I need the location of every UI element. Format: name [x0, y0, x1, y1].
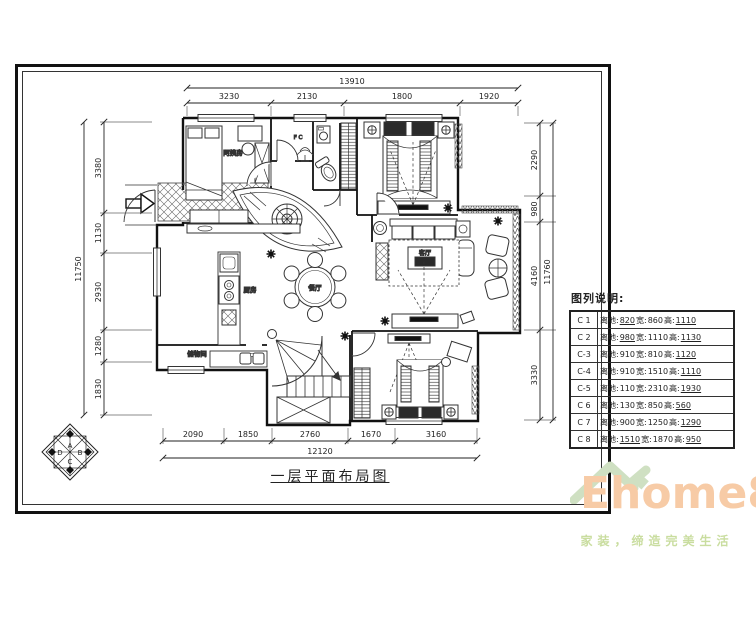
svg-text:1920: 1920 — [479, 92, 499, 101]
compass-d: D — [57, 449, 62, 457]
legend-row: C 6 离地:130宽:850高:560 — [570, 397, 734, 414]
brand-name: Ehome8 — [580, 472, 756, 516]
room-label-living: 客厅 — [419, 249, 431, 257]
kitchen: 厨房 储物间 — [187, 252, 267, 367]
svg-text:3230: 3230 — [219, 92, 239, 101]
svg-text:3160: 3160 — [426, 430, 446, 439]
balcony — [484, 217, 510, 301]
svg-text:2090: 2090 — [183, 430, 203, 439]
legend-row: C-3 离地:910宽:810高:1120 — [570, 346, 734, 363]
brand-logo: Ehome8 家装，缔造完美生活 — [558, 448, 756, 558]
hall-note: F C — [294, 135, 303, 141]
legend-table: C 1 离地:820宽:860高:1110 C 2 离地:980宽:1110高:… — [569, 310, 735, 449]
room-label-dining: 餐厅 — [309, 283, 323, 292]
svg-text:2130: 2130 — [297, 92, 317, 101]
room-label-storage: 储物间 — [187, 349, 207, 358]
floor-plan-page: 阿姨房 F C — [0, 0, 756, 630]
dining: 餐厅 — [267, 250, 346, 322]
dimensions-right: 2290 980 4160 3330 11760 — [530, 120, 556, 423]
svg-text:2760: 2760 — [300, 430, 320, 439]
svg-text:4160: 4160 — [530, 266, 539, 286]
room-label-nanny: 阿姨房 — [223, 148, 243, 157]
svg-text:2290: 2290 — [530, 150, 539, 170]
dimensions-top: 13910 3230 2130 1800 1920 — [184, 77, 521, 106]
dimensions-bottom: 2090 1850 2760 1670 3160 12120 — [160, 430, 480, 461]
svg-text:13910: 13910 — [339, 77, 364, 86]
legend-row: C-4 离地:910宽:1510高:1110 — [570, 363, 734, 380]
toilet-icon — [315, 156, 340, 184]
living-room: 客厅 — [374, 219, 475, 328]
compass: A B C D — [42, 424, 98, 480]
stairs — [268, 330, 351, 424]
legend-row: C 7 离地:900宽:1250高:1290 — [570, 414, 734, 431]
svg-text:3380: 3380 — [94, 158, 103, 178]
signal-icon — [297, 148, 313, 162]
svg-text:1850: 1850 — [238, 430, 258, 439]
legend-title: 图列说明: — [571, 290, 739, 306]
svg-text:11750: 11750 — [74, 256, 83, 281]
compass-a: A — [68, 442, 73, 450]
legend-panel: 图列说明: C 1 离地:820宽:860高:1110 C 2 离地:980宽:… — [569, 290, 739, 449]
svg-text:1670: 1670 — [361, 430, 381, 439]
bedroom-kids — [341, 332, 472, 420]
compass-c: C — [68, 458, 73, 466]
legend-row: C 2 离地:980宽:1110高:1130 — [570, 329, 734, 346]
svg-text:1280: 1280 — [94, 336, 103, 356]
legend-row: C 8 离地:1510宽:1870高:950 — [570, 431, 734, 449]
room-label-kitchen: 厨房 — [244, 285, 257, 294]
svg-text:980: 980 — [530, 201, 539, 216]
legend-row: C-5 离地:110宽:2310高:1930 — [570, 380, 734, 397]
svg-text:1830: 1830 — [94, 379, 103, 399]
compass-b: B — [78, 449, 83, 457]
washer-icon — [317, 126, 330, 143]
svg-text:12120: 12120 — [307, 447, 332, 456]
legend-row: C 1 离地:820宽:860高:1110 — [570, 311, 734, 329]
dimensions-left: 11750 3380 1130 2930 1280 1830 — [74, 119, 107, 418]
drawing-title: 一层平面布局图 — [240, 466, 420, 486]
svg-text:1130: 1130 — [94, 223, 103, 243]
svg-text:2930: 2930 — [94, 282, 103, 302]
svg-text:3330: 3330 — [530, 365, 539, 385]
svg-text:1800: 1800 — [392, 92, 412, 101]
svg-text:11760: 11760 — [543, 259, 552, 284]
bedroom-master — [364, 122, 454, 215]
brand-tagline: 家装，缔造完美生活 — [562, 532, 752, 549]
